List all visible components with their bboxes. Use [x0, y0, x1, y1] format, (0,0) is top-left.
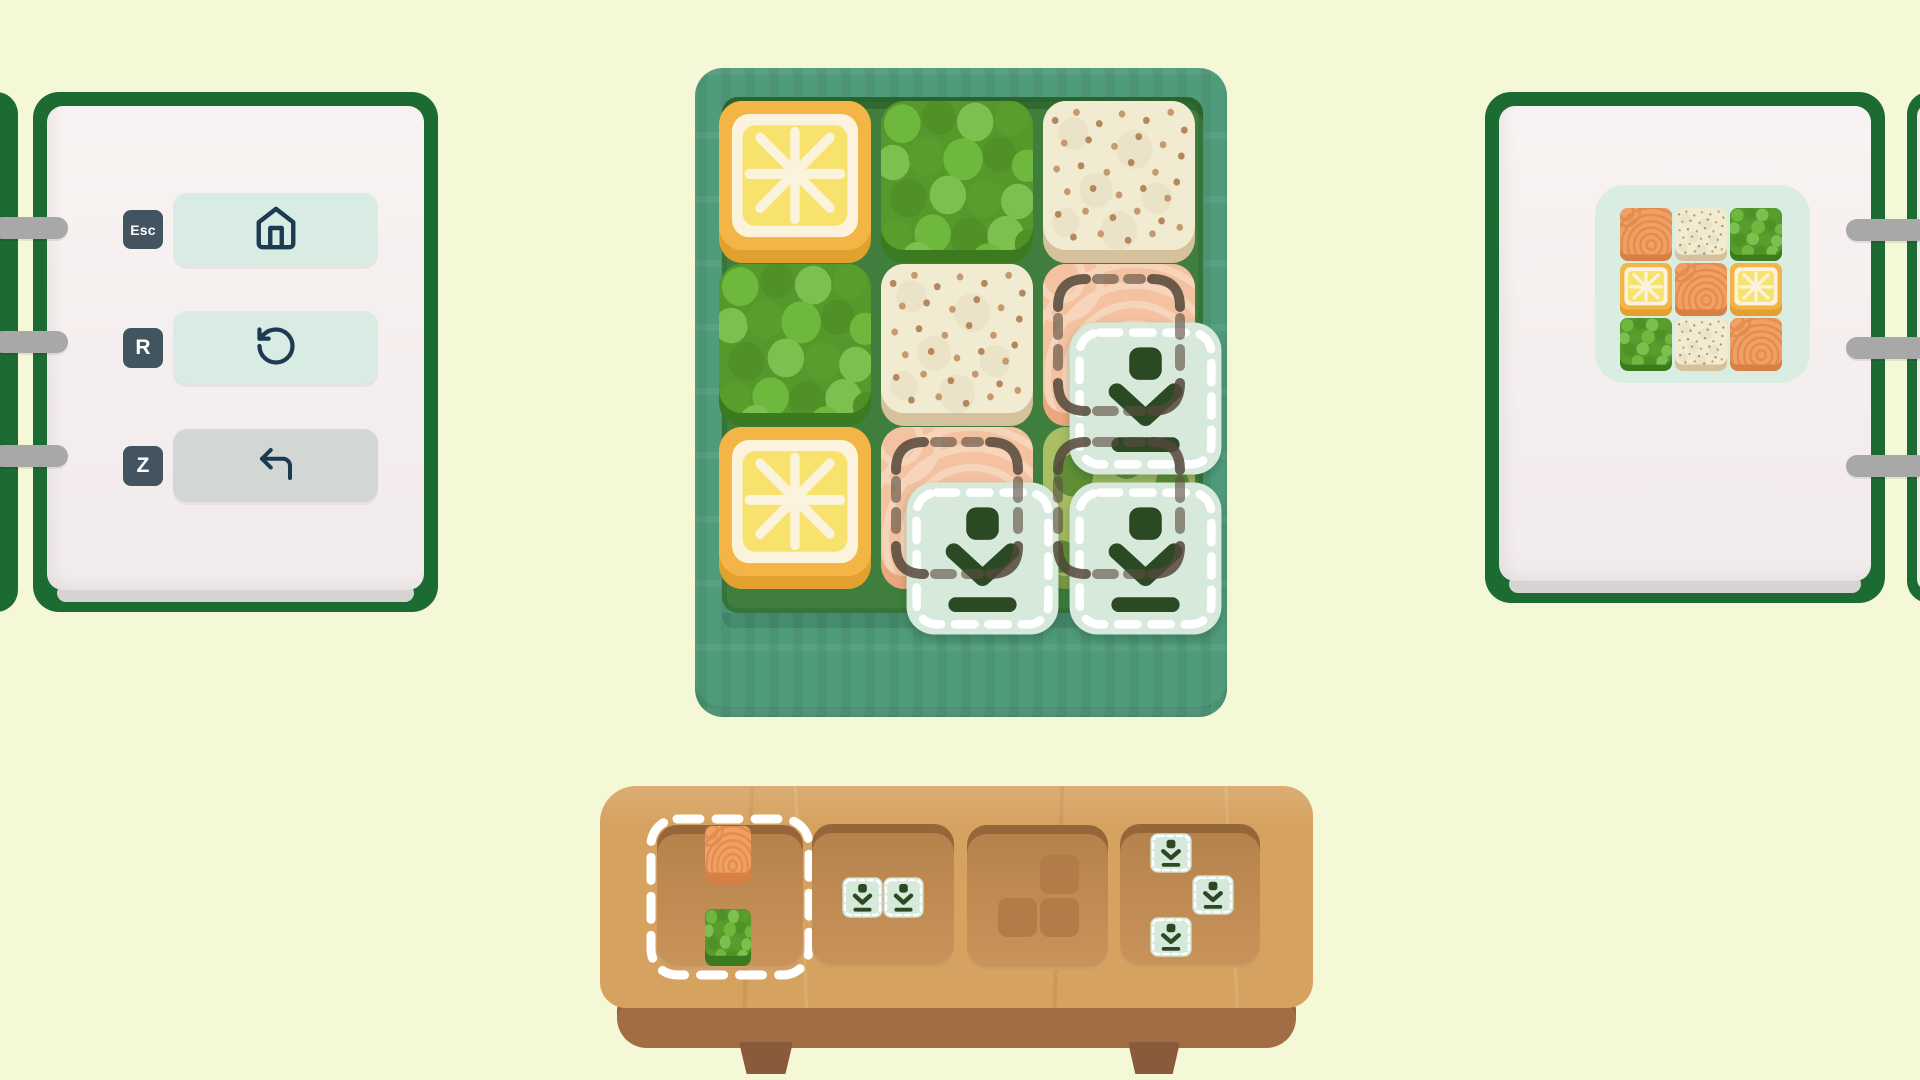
board-cell-lemon[interactable] — [719, 427, 871, 589]
goal-cell-salmon-vivid — [1620, 208, 1672, 261]
rotate-ccw-icon — [254, 324, 298, 371]
goal-cell-peas — [1730, 208, 1782, 261]
floating-drop-marker-tile[interactable] — [1068, 481, 1223, 638]
key-badge-z-label: Z — [136, 454, 149, 478]
binder-ring — [1846, 337, 1920, 359]
tray-piece-tile-salmon-vivid[interactable] — [705, 826, 751, 883]
tray-slot-2[interactable] — [812, 824, 954, 968]
floating-drop-marker-tile[interactable] — [1068, 321, 1223, 478]
key-badge-esc: Esc — [123, 210, 163, 249]
tray-slot-4[interactable] — [1120, 824, 1260, 968]
binder-ring — [0, 331, 68, 353]
binder-ring — [1846, 219, 1920, 241]
home-icon — [253, 205, 299, 254]
board-cell-rice[interactable] — [1043, 101, 1195, 263]
spent-piece-imprint-cell — [1040, 898, 1079, 937]
restart-button[interactable] — [173, 311, 378, 384]
goal-cell-salmon-vivid — [1730, 318, 1782, 371]
binder-ring — [0, 217, 68, 239]
goal-cell-peas — [1620, 318, 1672, 371]
tray-piece-tile-drop-marker[interactable] — [1192, 875, 1234, 915]
tray-piece-tile-drop-marker[interactable] — [1150, 917, 1192, 957]
tray-piece-tile-peas[interactable] — [705, 909, 751, 966]
goal-preview-chip — [1595, 185, 1810, 383]
key-badge-r-label: R — [135, 336, 150, 360]
tray-piece-tile-drop-marker[interactable] — [1150, 833, 1192, 873]
tray-foot — [1128, 1042, 1180, 1074]
board-cell-lemon[interactable] — [719, 101, 871, 263]
tray-slot-3[interactable] — [967, 825, 1108, 970]
bento-board — [695, 68, 1227, 717]
goal-cell-salmon-vivid — [1675, 263, 1727, 316]
floating-drop-marker-tile[interactable] — [905, 481, 1060, 638]
piece-tray — [600, 786, 1313, 1080]
key-badge-z: Z — [123, 446, 163, 486]
goal-cell-lemon — [1620, 263, 1672, 316]
spent-piece-imprint-cell — [998, 898, 1037, 937]
board-cell-rice[interactable] — [881, 264, 1033, 426]
goal-panel — [1485, 92, 1885, 603]
goal-cell-rice — [1675, 208, 1727, 261]
tray-piece-tile-drop-marker[interactable] — [842, 877, 883, 918]
goal-cell-rice — [1675, 318, 1727, 371]
tray-piece-tile-drop-marker[interactable] — [883, 877, 924, 918]
tray-foot — [739, 1042, 793, 1074]
tray-slot-1-selected[interactable] — [657, 825, 803, 969]
board-cell-peas[interactable] — [719, 264, 871, 426]
undo-icon — [255, 443, 297, 488]
goal-cell-lemon — [1730, 263, 1782, 316]
key-badge-r: R — [123, 328, 163, 368]
binder-ring — [1846, 455, 1920, 477]
undo-button[interactable] — [173, 429, 378, 502]
binder-ring — [0, 445, 68, 467]
home-button[interactable] — [173, 193, 378, 266]
goal-grid — [1620, 208, 1784, 371]
key-badge-esc-label: Esc — [130, 222, 156, 238]
spent-piece-imprint-cell — [1040, 855, 1079, 894]
board-cell-peas[interactable] — [881, 101, 1033, 263]
